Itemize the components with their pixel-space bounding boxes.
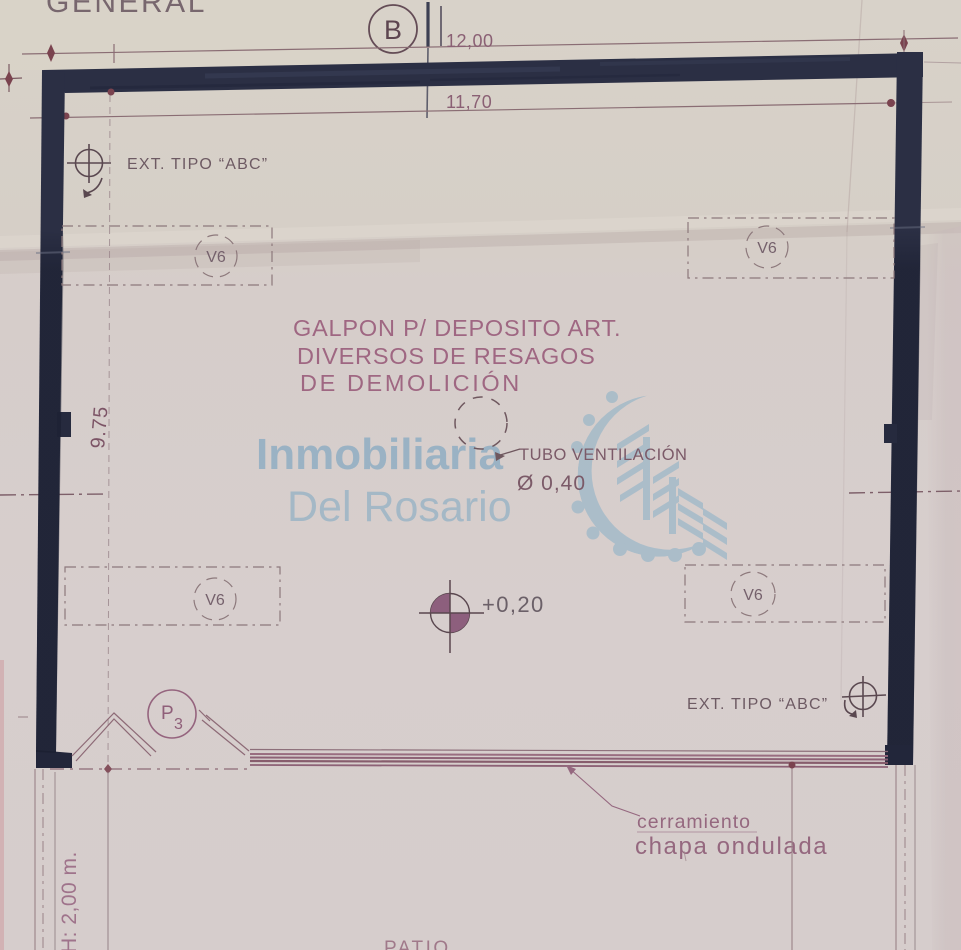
svg-text:TUBO VENTILACIÓN: TUBO VENTILACIÓN	[519, 445, 687, 464]
svg-text:H: 2,00 m.: H: 2,00 m.	[58, 851, 81, 950]
svg-text:DE DEMOLICIÓN: DE DEMOLICIÓN	[300, 370, 522, 396]
svg-text:B: B	[384, 15, 402, 45]
svg-text:V6: V6	[743, 587, 763, 604]
svg-text:GENERAL: GENERAL	[46, 0, 207, 19]
svg-text:V6: V6	[205, 592, 225, 609]
svg-text:cerramiento: cerramiento	[637, 811, 751, 833]
svg-text:+0,20: +0,20	[482, 592, 545, 617]
svg-text:EXT. TIPO “ABC”: EXT. TIPO “ABC”	[687, 696, 828, 713]
svg-text:chapa ondulada: chapa ondulada	[635, 833, 828, 860]
svg-text:EXT. TIPO “ABC”: EXT. TIPO “ABC”	[127, 156, 268, 173]
svg-text:V6: V6	[757, 240, 777, 257]
svg-text:9.75: 9.75	[87, 405, 113, 450]
svg-text:GALPON P/ DEPOSITO ART.: GALPON P/ DEPOSITO ART.	[293, 315, 621, 341]
svg-text:PATIO: PATIO	[384, 938, 451, 950]
svg-text:P: P	[161, 703, 174, 724]
svg-text:3: 3	[174, 716, 183, 733]
svg-text:12,00: 12,00	[446, 31, 494, 51]
svg-text:Ø 0,40: Ø 0,40	[517, 472, 586, 495]
svg-text:Inmobiliaria: Inmobiliaria	[256, 430, 503, 479]
svg-text:11,70: 11,70	[446, 92, 492, 112]
svg-text:DIVERSOS DE RESAGOS: DIVERSOS DE RESAGOS	[297, 343, 596, 369]
svg-text:Del Rosario: Del Rosario	[287, 483, 512, 531]
svg-text:V6: V6	[206, 249, 226, 266]
